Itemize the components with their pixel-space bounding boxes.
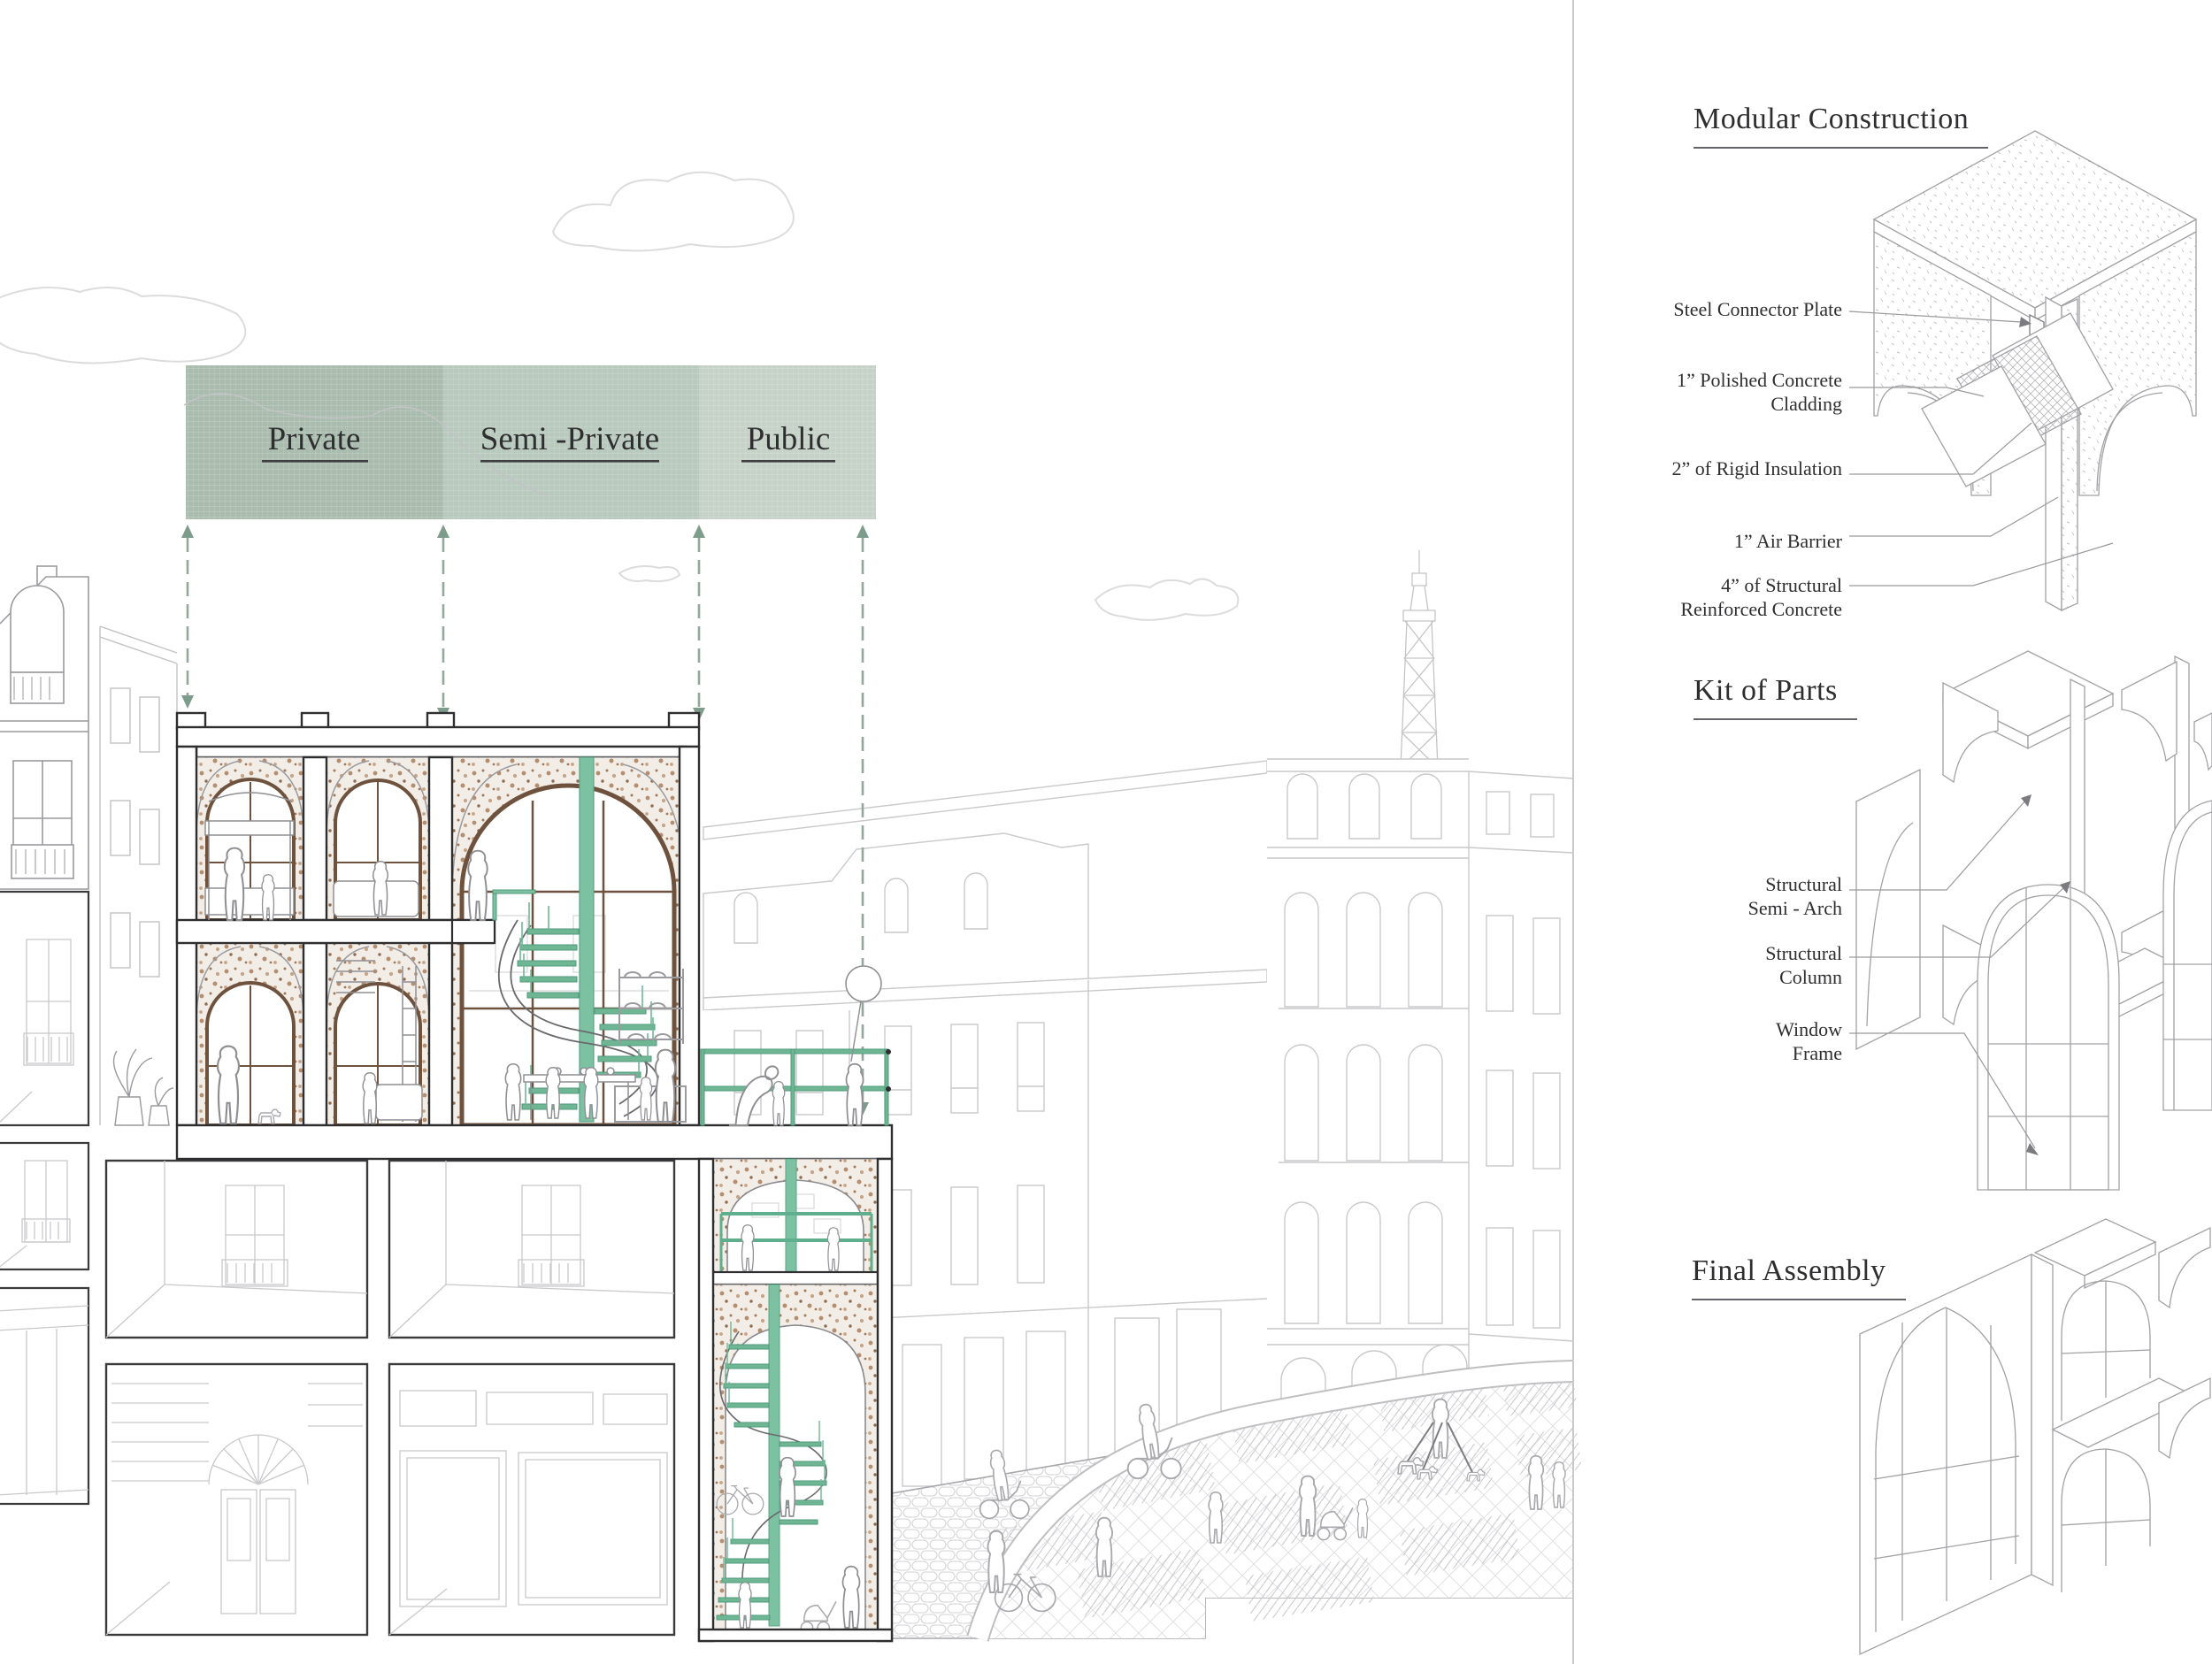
callout-air-barrier: 1” Air Barrier <box>1665 529 1842 553</box>
cloud <box>619 566 680 581</box>
balloon <box>846 966 881 1001</box>
modular-construction-title: Modular Construction <box>1694 103 1988 149</box>
cloud <box>1095 579 1238 619</box>
kit-of-parts-diagram <box>1856 651 2212 1190</box>
column <box>429 757 452 920</box>
banner-private-label: Private <box>268 421 361 457</box>
final-assembly-title: Final Assembly <box>1692 1254 1906 1300</box>
callout-window-frame: Window Frame <box>1736 1017 1842 1066</box>
banner-public-label: Public <box>747 421 831 457</box>
kit-of-parts-title: Kit of Parts <box>1694 674 1857 720</box>
banner-semi-private-label: Semi -Private <box>480 421 659 457</box>
interior-room-boxes <box>106 1161 674 1635</box>
modular-construction-diagram <box>1874 131 2196 610</box>
mezzanine-slab <box>713 1272 878 1284</box>
left-facade <box>0 566 88 889</box>
courtyard-facade <box>100 626 177 1125</box>
column <box>429 943 452 1125</box>
column <box>303 943 326 1125</box>
cloud <box>553 173 794 251</box>
landing <box>452 920 495 943</box>
zoning-banner: Private Semi -Private Public <box>184 365 876 519</box>
semi-arch <box>2159 1228 2210 1307</box>
callout-structural-semi-arch: Structural Semi - Arch <box>1736 872 1842 921</box>
callout-concrete-cladding: 1” Polished Concrete Cladding <box>1665 368 1842 417</box>
callout-structural-column: Structural Column <box>1736 941 1842 990</box>
floor-slab <box>177 920 493 943</box>
cloud <box>0 288 245 363</box>
window-frame-part <box>2163 801 2212 1110</box>
callout-reinforced-concrete: 4” of Structural Reinforced Concrete <box>1665 573 1842 622</box>
callout-rigid-insulation: 2” of Rigid Insulation <box>1665 456 1842 480</box>
plants <box>113 1049 173 1125</box>
semi-arch-part <box>2194 713 2212 770</box>
left-room-boxes <box>0 892 88 1504</box>
column <box>303 757 326 920</box>
final-assembly-diagram <box>1860 1219 2210 1654</box>
terrace-slab <box>177 1125 892 1159</box>
dashed-arrow-boundary-1 <box>437 525 449 721</box>
dashed-arrow-boundary-2 <box>693 525 705 721</box>
semi-arch-part <box>2122 662 2177 761</box>
board-drawing: Private Semi -Private Public <box>0 0 2212 1664</box>
wall-panel-part <box>1856 770 1920 1049</box>
below-grade-rooms <box>699 1159 892 1641</box>
callout-steel-connector-plate: Steel Connector Plate <box>1665 297 1842 321</box>
right-wall <box>680 747 699 1125</box>
dashed-arrow-private <box>181 525 194 709</box>
window-frame-part <box>1978 885 2119 1190</box>
eiffel-tower <box>1401 550 1438 768</box>
presentation-board: { "main": { "banner": { "sections": [ {"… <box>0 0 2212 1664</box>
